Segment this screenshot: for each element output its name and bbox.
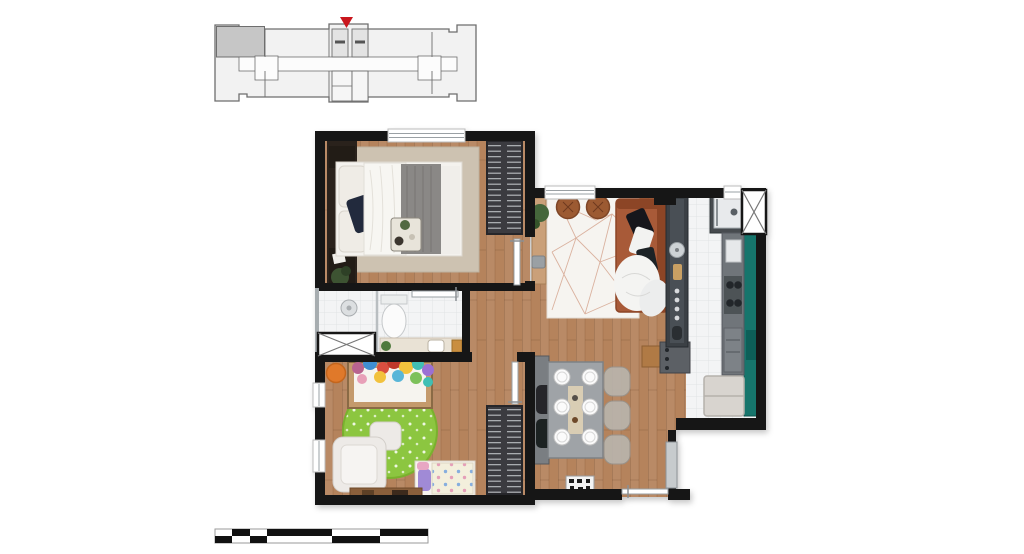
highlighted-unit bbox=[217, 27, 265, 58]
plant-icon bbox=[341, 266, 351, 276]
floor-plan-page bbox=[0, 0, 1024, 554]
kids-wardrobe bbox=[487, 406, 522, 494]
wall-top-pillar bbox=[654, 188, 676, 205]
wall-kids-right bbox=[525, 352, 535, 505]
kids-window bbox=[313, 440, 325, 472]
wall-bathroom-right bbox=[462, 286, 470, 356]
centerpiece-icon bbox=[572, 417, 578, 423]
armchair-cushion bbox=[341, 445, 377, 484]
corridor-lobby-left bbox=[255, 56, 278, 80]
wall-bedroom-left bbox=[315, 131, 325, 291]
table-runner bbox=[568, 386, 583, 434]
cutting-board-icon bbox=[673, 264, 682, 280]
service-door bbox=[666, 442, 677, 488]
floor-plan bbox=[313, 129, 766, 505]
tray-plate-icon bbox=[409, 234, 415, 240]
shower-head-icon bbox=[347, 306, 352, 311]
microwave-dial-icon bbox=[731, 209, 738, 216]
duct-shaft-kitchen bbox=[742, 190, 766, 234]
teal-cabinets bbox=[744, 233, 758, 416]
toilet-bowl bbox=[382, 304, 406, 338]
mattress-edge bbox=[441, 166, 460, 254]
wall-bedroom-bottom bbox=[315, 283, 535, 291]
wall-bedroom-right-stub bbox=[525, 281, 535, 291]
corridor-lobby-right bbox=[418, 56, 441, 80]
tray-plant-icon bbox=[400, 220, 410, 230]
wall-dining-bottom-left bbox=[535, 489, 622, 500]
key-plan bbox=[215, 17, 476, 102]
pink-cushion bbox=[417, 462, 429, 470]
vanity-plant-icon bbox=[381, 341, 391, 351]
teal-cabinet-inset bbox=[746, 330, 756, 360]
faucet-icon bbox=[672, 326, 682, 340]
wood-box-icon bbox=[452, 340, 462, 352]
kids-duvet bbox=[432, 463, 473, 494]
cabinet-knob-icon bbox=[665, 348, 669, 352]
kitchen-window bbox=[724, 186, 741, 199]
room-living bbox=[530, 196, 674, 321]
centerpiece-icon bbox=[572, 395, 578, 401]
plan-canvas bbox=[0, 0, 1024, 554]
dishwasher bbox=[724, 328, 742, 372]
cabinet-knob-icon bbox=[665, 366, 669, 370]
wood-stool bbox=[642, 346, 660, 367]
counter-pad-icon bbox=[726, 240, 741, 262]
duct-shaft-bathroom bbox=[318, 333, 375, 356]
orange-pouf bbox=[327, 364, 346, 383]
vanity-sink bbox=[428, 340, 444, 352]
toilet-tank bbox=[381, 295, 407, 304]
wall-dining-bottom-right bbox=[668, 489, 690, 500]
sink-drain-icon bbox=[675, 248, 679, 252]
bedroom-window bbox=[388, 129, 465, 142]
kids-window bbox=[313, 383, 325, 407]
wall-kids-left bbox=[315, 352, 325, 505]
scale-bar bbox=[215, 529, 428, 543]
bedroom-wardrobe bbox=[487, 141, 522, 234]
cabinet-knob-icon bbox=[665, 357, 669, 361]
wall-kitchen-bottom bbox=[676, 418, 766, 430]
wall-kids-bottom bbox=[315, 495, 535, 505]
console-box-icon bbox=[532, 256, 545, 268]
dining-chairs-right bbox=[604, 367, 630, 464]
wall-bedroom-right-upper bbox=[525, 131, 535, 237]
tray-cup-icon bbox=[395, 237, 404, 246]
living-window bbox=[545, 186, 595, 199]
